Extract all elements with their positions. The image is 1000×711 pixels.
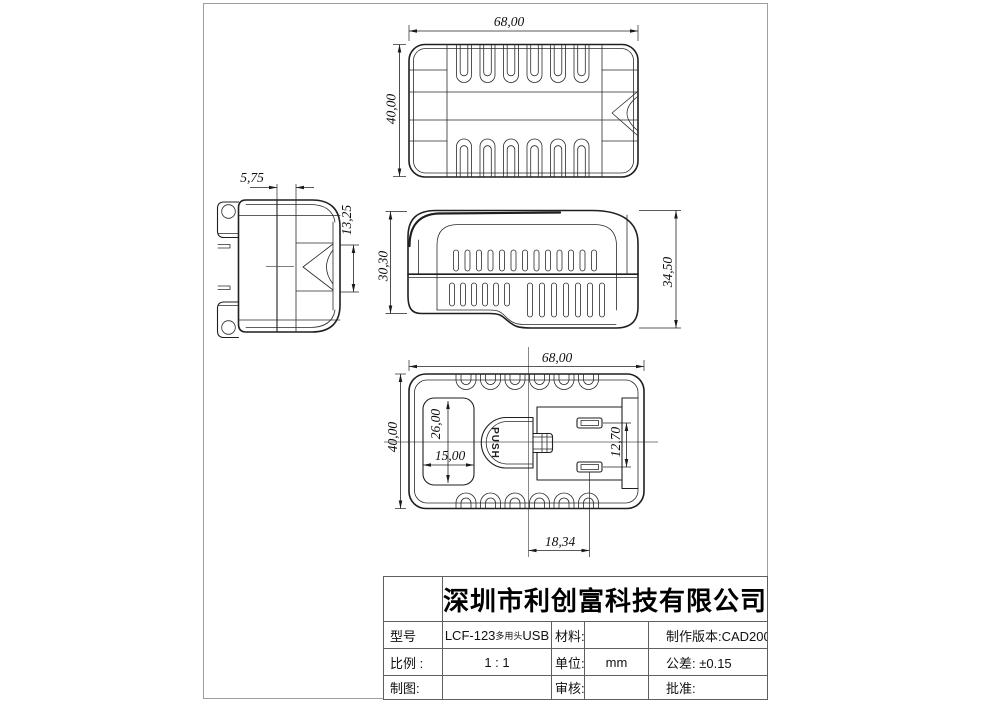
latch-tab	[533, 434, 553, 453]
top-view-inner-outline	[414, 49, 634, 174]
dim-port-offset: 18,34	[545, 534, 576, 549]
check-value	[585, 676, 649, 700]
logo-cell	[384, 577, 443, 622]
model-small: 多用头	[495, 629, 522, 642]
edge-slots-bottom	[456, 493, 599, 508]
approve-label: 批准:	[649, 676, 768, 700]
dim-bottom-height: 40,00	[385, 422, 400, 453]
dim-top-height: 40,00	[384, 94, 399, 125]
dim-side-offset: 5,75	[240, 170, 264, 185]
tolerance-label: 公差: ±0.15	[649, 649, 768, 676]
model-prefix: LCF-123	[445, 628, 496, 643]
dim-side-port: 13,25	[339, 205, 354, 236]
top-edge-accent	[410, 213, 561, 247]
check-label: 审核:	[552, 676, 585, 700]
unit-value: mm	[585, 649, 649, 676]
inner-face-band	[437, 225, 617, 311]
front-profile-view: 30,30 34,50	[376, 211, 682, 329]
top-view: 68,00 40,00	[384, 14, 639, 177]
model-label: 型号	[384, 622, 443, 649]
dim-contact-pitch: 12,70	[608, 427, 623, 458]
bottom-view: PUSH 68,00	[384, 347, 658, 557]
scale-value: 1 : 1	[443, 649, 552, 676]
dim-bottom-width: 68,00	[542, 350, 573, 365]
usb-port-side-detail	[296, 243, 333, 291]
dim-overall-height: 34,50	[660, 257, 675, 289]
ac-pin-bottom	[218, 302, 239, 338]
side-view: 5,75 13,25	[218, 170, 360, 338]
usb-contact-slot-inner	[581, 465, 599, 470]
title-block: 深圳市利创富科技有限公司 型号 LCF-123多用头USB 材料: 制作版本:C…	[383, 576, 768, 700]
top-view-outline	[409, 45, 638, 178]
pin-clip-detail	[218, 245, 230, 290]
material-label: 材料:	[552, 622, 585, 649]
model-suffix: USB	[522, 628, 549, 643]
vent-slots-bottom	[457, 139, 590, 177]
usb-contact-slot-inner	[581, 421, 599, 426]
dim-front-height: 30,30	[376, 251, 391, 283]
dim-recess-width: 15,00	[435, 448, 466, 463]
draft-label: 制图:	[384, 676, 443, 700]
ac-pin-top	[218, 202, 239, 238]
vent-slots-upper	[454, 250, 597, 271]
material-value	[585, 622, 649, 649]
side-view-outline	[239, 200, 341, 332]
edge-slots-top	[456, 375, 599, 390]
inner-edge	[246, 310, 335, 328]
model-value: LCF-123多用头USB	[443, 622, 552, 649]
vent-slots-lower	[450, 283, 605, 317]
draft-value	[443, 676, 552, 700]
version-label: 制作版本:CAD2008	[649, 622, 768, 649]
push-button-label: PUSH	[489, 427, 500, 459]
vent-slots-top	[457, 45, 590, 83]
dim-recess-height: 26,00	[428, 409, 443, 440]
cad-drawing-page: 68,00 40,00	[0, 0, 1000, 711]
unit-label: 单位:	[552, 649, 585, 676]
dim-top-width: 68,00	[494, 14, 525, 29]
scale-label: 比例 :	[384, 649, 443, 676]
company-name: 深圳市利创富科技有限公司	[443, 577, 768, 622]
inner-edge	[246, 205, 335, 223]
